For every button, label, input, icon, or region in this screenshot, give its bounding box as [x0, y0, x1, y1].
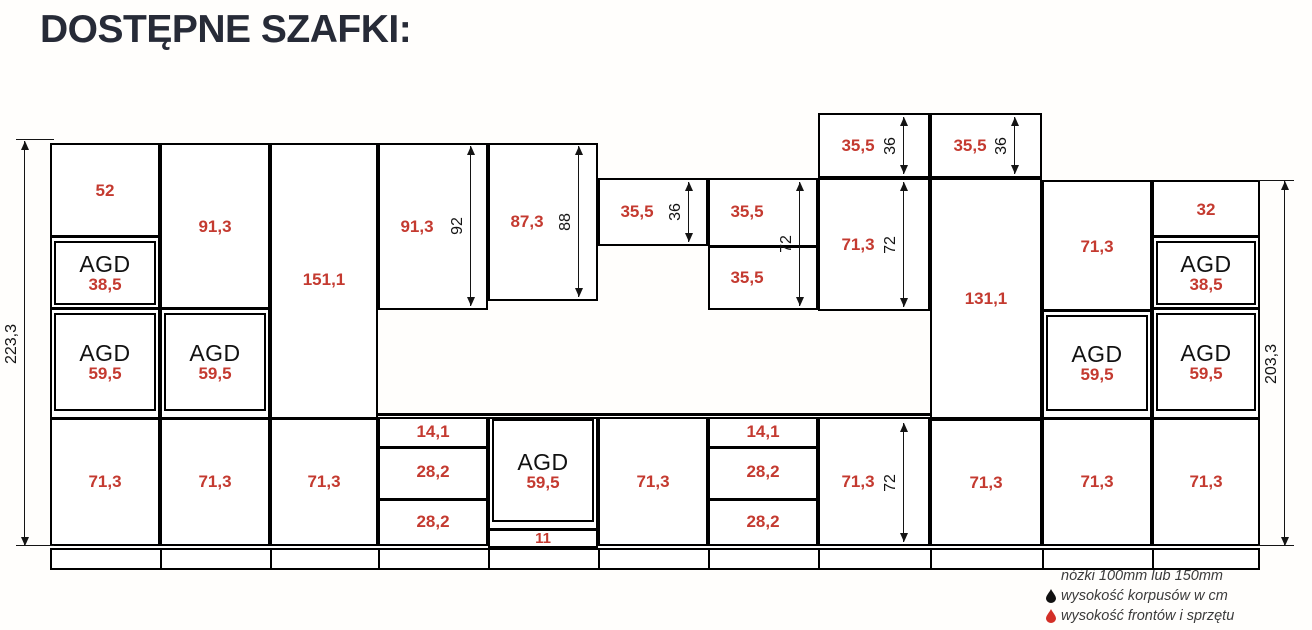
dimension-extension-line	[1258, 545, 1294, 546]
cabinet-unit: 91,3AGD59,571,3	[160, 143, 270, 546]
dimension-line	[24, 141, 25, 546]
legend-front-row: wysokość frontów i sprzętu	[1046, 606, 1234, 626]
dimension-line	[1014, 117, 1015, 174]
cabinet-front-height: 28,2	[710, 446, 816, 498]
agd-label: AGD	[1180, 341, 1231, 365]
countertop-line	[376, 413, 932, 416]
cabinet-shelf-line	[51, 307, 159, 310]
agd-label: AGD	[79, 341, 130, 365]
agd-appliance-box: AGD59,5	[1046, 315, 1148, 411]
cabinet-front-height: 11	[490, 528, 596, 548]
cabinet-front-height: 87,3	[474, 143, 580, 301]
cabinet-shelf-line	[709, 245, 817, 248]
agd-appliance-box: AGD38,5	[1156, 241, 1256, 305]
plinth-divider	[488, 549, 490, 569]
dimension-line	[470, 146, 471, 306]
dimension-extension-line	[1258, 180, 1294, 181]
cabinet-shelf-line	[489, 528, 597, 531]
agd-height-value: 59,5	[1080, 366, 1113, 384]
agd-label: AGD	[517, 450, 568, 474]
cabinet-front-height: 71,3	[272, 417, 376, 546]
cabinet-front-height: 71,3	[1044, 417, 1150, 546]
dimension-line	[903, 182, 904, 307]
plinth-divider	[818, 549, 820, 569]
cabinet-unit: 52AGD38,5AGD59,571,3	[50, 143, 160, 546]
cabinet-shelf-line	[1043, 309, 1151, 312]
cabinet-front-height: 35,5	[694, 178, 800, 245]
agd-label: AGD	[189, 341, 240, 365]
plinth-divider	[270, 549, 272, 569]
dimension-label: 223,3	[3, 312, 21, 376]
legend-korpus-text: wysokość korpusów w cm	[1061, 586, 1228, 606]
dimension-line	[1284, 181, 1285, 546]
cabinet-diagram-page: DOSTĘPNE SZAFKI: 52AGD38,5AGD59,571,391,…	[0, 0, 1312, 630]
cabinet-front-height: 32	[1154, 180, 1258, 239]
cabinet-unit: 71,3	[818, 178, 930, 311]
dimension-line	[578, 146, 579, 297]
agd-height-value: 59,5	[526, 474, 559, 492]
cabinet-unit: 131,1	[930, 178, 1042, 419]
cabinet-unit: 14,128,228,2	[378, 417, 488, 546]
cabinet-front-height: 14,1	[380, 417, 486, 446]
cabinet-front-height: 71,3	[1154, 417, 1258, 546]
cabinet-front-height: 71,3	[52, 417, 158, 546]
cabinet-front-height: 28,2	[380, 498, 486, 546]
cabinet-unit: 35,5	[930, 113, 1042, 178]
cabinet-shelf-line	[709, 498, 817, 501]
plinth	[50, 548, 1260, 570]
agd-height-value: 59,5	[1189, 365, 1222, 383]
cabinet-front-height: 35,5	[916, 113, 1024, 178]
agd-label: AGD	[1071, 342, 1122, 366]
plinth-divider	[378, 549, 380, 569]
plinth-divider	[930, 549, 932, 569]
dimension-extension-line	[16, 139, 54, 140]
plinth-divider	[160, 549, 162, 569]
cabinet-shelf-line	[51, 235, 159, 238]
dimension-line	[799, 182, 800, 306]
agd-appliance-box: AGD59,5	[54, 313, 156, 411]
cabinet-shelf-line	[379, 446, 487, 449]
cabinet-shelf-line	[271, 417, 377, 420]
cabinet-shelf-line	[1153, 307, 1259, 310]
cabinet-unit: 87,3	[488, 143, 598, 301]
plinth-divider	[708, 549, 710, 569]
cabinet-front-height: 35,5	[804, 113, 912, 178]
plinth-divider	[598, 549, 600, 569]
cabinet-front-height: 35,5	[584, 178, 690, 246]
black-drop-icon	[1046, 589, 1056, 603]
cabinet-front-height: 71,3	[804, 417, 912, 546]
dimension-line	[688, 182, 689, 242]
cabinet-shelf-line	[1153, 235, 1259, 238]
plinth-divider	[1042, 549, 1044, 569]
dimension-line	[903, 117, 904, 174]
cabinet-front-height: 71,3	[162, 417, 268, 546]
cabinet-unit: 71,3	[818, 417, 930, 546]
legend-korpus-row: wysokość korpusów w cm	[1046, 586, 1234, 606]
legend: nóżki 100mm lub 150mm wysokość korpusów …	[1046, 566, 1234, 626]
cabinet-shelf-line	[379, 498, 487, 501]
cabinet-unit: AGD59,511	[488, 417, 598, 548]
agd-label: AGD	[79, 252, 130, 276]
cabinet-front-height: 28,2	[380, 446, 486, 498]
agd-height-value: 38,5	[88, 276, 121, 294]
cabinet-shelf-line	[1043, 417, 1151, 420]
cabinet-shelf-line	[709, 446, 817, 449]
plinth-divider	[1152, 549, 1154, 569]
cabinet-unit: 91,3	[378, 143, 488, 310]
agd-label: AGD	[1180, 252, 1231, 276]
cabinet-front-height: 35,5	[694, 245, 800, 310]
cabinet-front-height: 91,3	[162, 143, 268, 311]
page-title: DOSTĘPNE SZAFKI:	[40, 8, 411, 52]
cabinet-front-height: 71,3	[1044, 180, 1150, 313]
cabinet-unit: 35,5	[818, 113, 930, 178]
agd-height-value: 59,5	[198, 365, 231, 383]
cabinet-front-height: 14,1	[710, 417, 816, 446]
dimension-line	[903, 423, 904, 542]
cabinet-front-height: 52	[52, 143, 158, 239]
cabinet-shelf-line	[161, 307, 269, 310]
cabinet-front-height: 28,2	[710, 498, 816, 546]
cabinet-front-height: 71,3	[804, 178, 912, 311]
cabinet-front-height: 91,3	[364, 143, 470, 310]
red-drop-icon	[1046, 609, 1056, 623]
cabinet-shelf-line	[51, 417, 159, 420]
agd-appliance-box: AGD59,5	[164, 313, 266, 411]
cabinet-unit: 71,3AGD59,571,3	[1042, 180, 1152, 546]
cabinet-front-height: 71,3	[600, 417, 706, 546]
cabinet-front-height: 151,1	[272, 143, 376, 417]
agd-appliance-box: AGD38,5	[54, 241, 156, 305]
cabinet-front-height: 131,1	[932, 178, 1040, 419]
agd-height-value: 38,5	[1189, 276, 1222, 294]
dimension-label: 203,3	[1263, 332, 1281, 396]
legend-front-text: wysokość frontów i sprzętu	[1061, 606, 1234, 626]
cabinet-shelf-line	[1153, 417, 1259, 420]
cabinet-unit: 71,3	[930, 419, 1042, 546]
agd-appliance-box: AGD59,5	[492, 419, 594, 522]
agd-height-value: 59,5	[88, 365, 121, 383]
cabinet-shelf-line	[161, 417, 269, 420]
cabinet-unit: 151,171,3	[270, 143, 378, 546]
cabinet-unit: 71,3	[598, 417, 708, 546]
cabinet-front-height: 71,3	[932, 419, 1040, 546]
cabinet-unit: 14,128,228,2	[708, 417, 818, 546]
cabinet-unit: 35,535,5	[708, 178, 818, 310]
agd-appliance-box: AGD59,5	[1156, 313, 1256, 411]
cabinet-unit: 32AGD38,5AGD59,571,3	[1152, 180, 1260, 546]
